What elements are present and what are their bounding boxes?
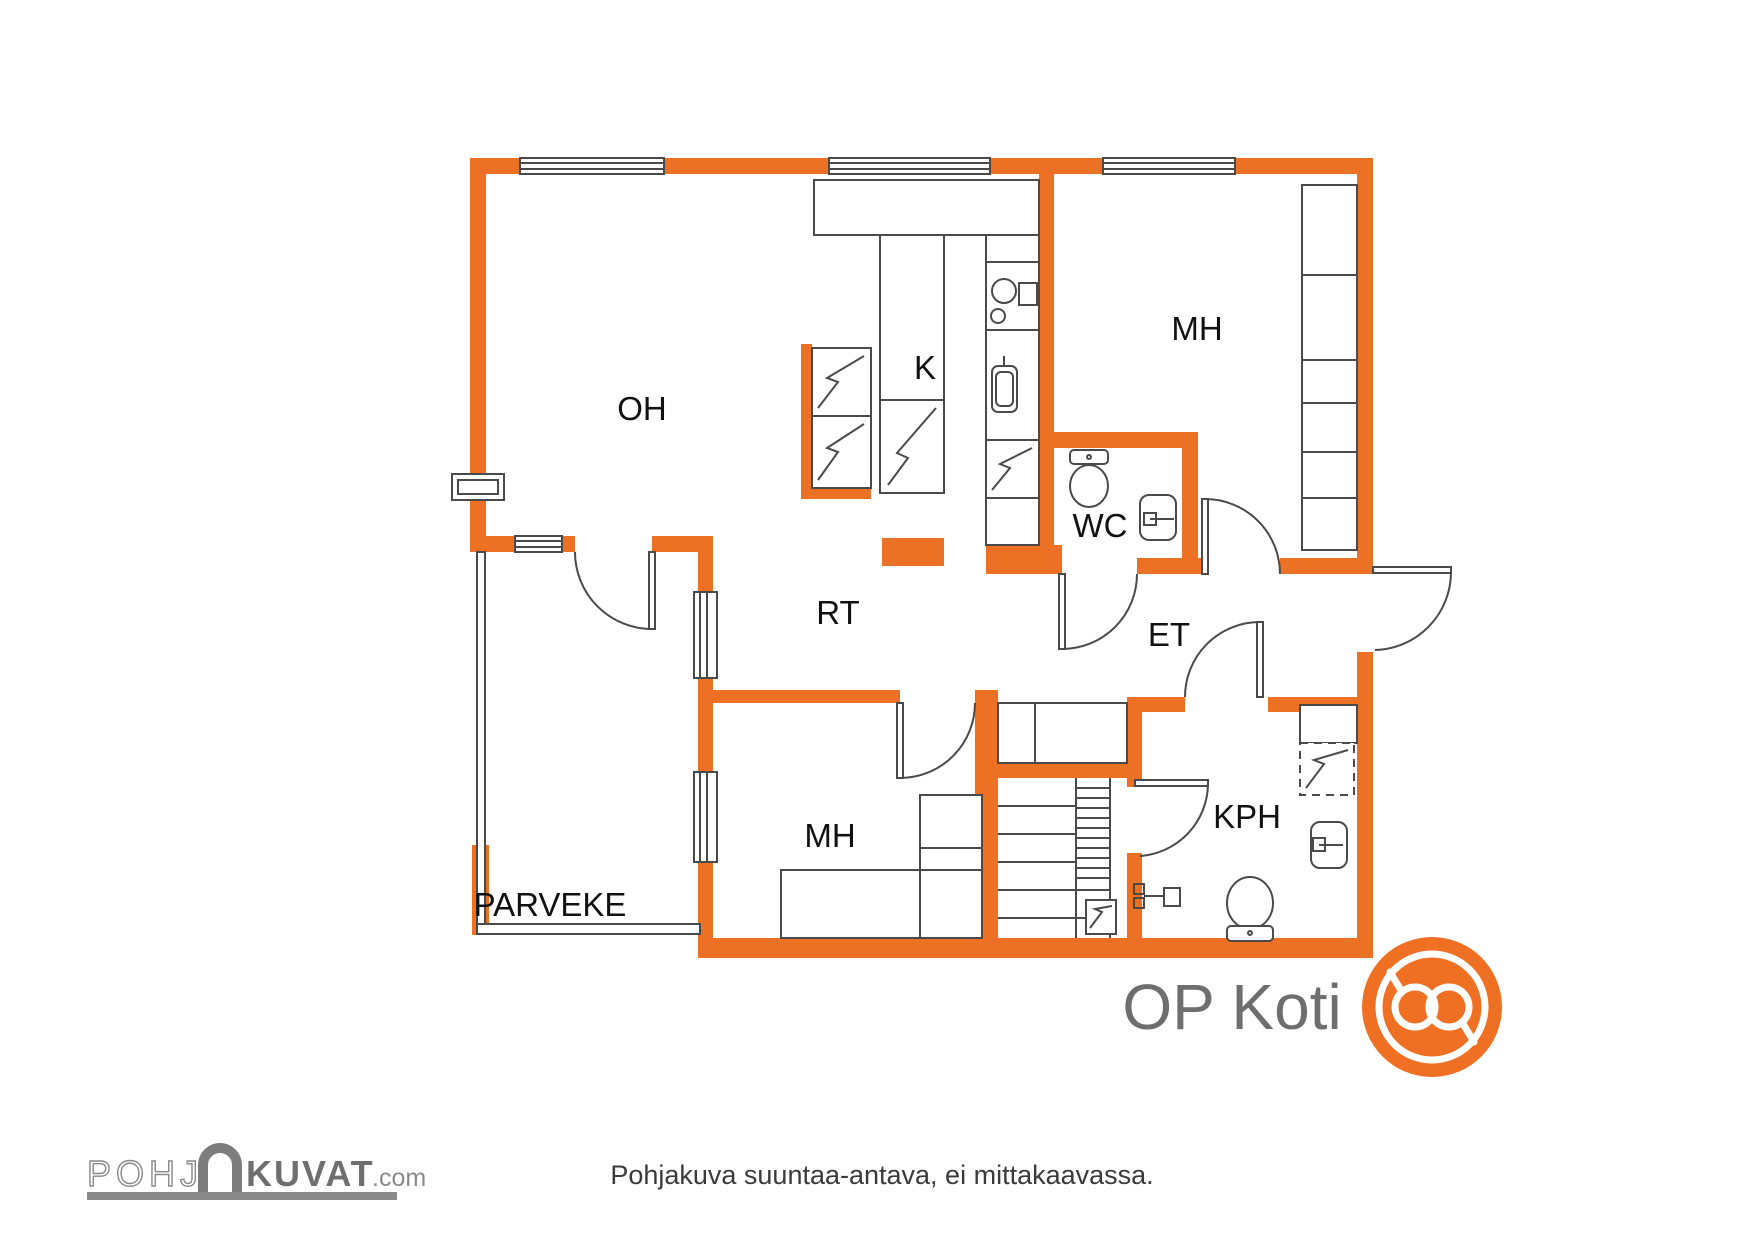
footer: Pohjakuva suuntaa-antava, ei mittakaavas…	[610, 1160, 1153, 1190]
room-label-oh: OH	[617, 390, 667, 427]
washbasin-icon	[1311, 822, 1347, 868]
appliance-reservation-icon	[1300, 705, 1357, 795]
wall-wc-top	[1054, 432, 1198, 448]
door-balcony	[575, 552, 655, 629]
door-mh-bottom	[897, 703, 975, 778]
room-label-mh-bottom: MH	[804, 817, 855, 854]
fireplace-wall	[801, 344, 812, 499]
fireplace-wall	[801, 488, 871, 499]
wall-mh2-top	[713, 690, 900, 703]
fireplace-icon	[812, 348, 871, 488]
pohjakuvat-part2: KUVAT	[246, 1153, 375, 1194]
door-entry	[1373, 567, 1451, 650]
room-label-k: K	[914, 349, 936, 386]
op-koti-text: OP Koti	[1122, 971, 1341, 1043]
pohjakuvat-underline	[87, 1192, 397, 1200]
wall-right	[1357, 652, 1373, 958]
wall-mh-top-bottom	[1280, 558, 1357, 574]
floorplan-canvas: OH K MH WC RT ET MH KPH PARVEKE Pohjakuv…	[0, 0, 1754, 1241]
window-icon	[694, 772, 717, 862]
wall-wc-bottom	[986, 545, 1062, 574]
balcony-railing	[477, 552, 700, 934]
wall-oh-bottom	[562, 536, 575, 552]
window-icon	[452, 474, 504, 500]
wall-top	[1235, 158, 1373, 174]
wardrobe	[1302, 185, 1357, 550]
window-icon	[694, 592, 717, 678]
window-icon	[1103, 158, 1235, 174]
room-label-mh-top: MH	[1171, 310, 1222, 347]
wall-k-mh	[1039, 174, 1054, 574]
pohjakuvat-suffix: .com	[372, 1164, 426, 1192]
door-kph-inner	[1135, 780, 1208, 856]
window-icon	[520, 158, 664, 174]
wall-oh-bottom	[470, 536, 515, 552]
room-labels: OH K MH WC RT ET MH KPH PARVEKE	[474, 310, 1281, 923]
linework	[452, 158, 1451, 941]
wall-balcony-right	[698, 678, 713, 772]
door-mh-top	[1202, 499, 1280, 574]
wall-top	[664, 158, 829, 174]
washbasin-icon	[1140, 495, 1176, 540]
disclaimer-text: Pohjakuva suuntaa-antava, ei mittakaavas…	[610, 1160, 1153, 1190]
toilet-icon	[1227, 877, 1273, 941]
room-label-et: ET	[1148, 616, 1190, 653]
floorplan-page: OH K MH WC RT ET MH KPH PARVEKE Pohjakuv…	[0, 0, 1754, 1241]
room-label-parveke: PARVEKE	[474, 886, 627, 923]
wall-kph-left	[1127, 853, 1142, 938]
wall-kph-left	[1127, 697, 1142, 787]
wall-right	[1357, 158, 1373, 574]
room-label-kph: KPH	[1213, 798, 1281, 835]
wall-wc-bottom	[1137, 558, 1205, 574]
wall-stair-bar	[998, 763, 1127, 778]
pohjakuvat-arch-icon	[203, 1148, 237, 1196]
window-icon	[829, 158, 990, 174]
op-logo-icon	[1362, 937, 1502, 1077]
window-icon	[515, 536, 562, 552]
wall-wc-right	[1182, 448, 1198, 574]
room-label-rt: RT	[816, 594, 859, 631]
pohjakuvat-part1: POHJ	[87, 1153, 203, 1194]
wall-k-stub	[882, 538, 944, 566]
wall-balcony-right	[698, 536, 713, 592]
room-label-wc: WC	[1073, 507, 1128, 544]
heater-icon	[1086, 900, 1116, 934]
toilet-icon	[1070, 450, 1108, 507]
wall-top	[990, 158, 1103, 174]
wall-left	[470, 158, 486, 474]
door-kph-et	[1185, 622, 1263, 697]
door-wc	[1059, 574, 1137, 649]
pohjakuvat-logo: POHJ KUVAT .com	[87, 1148, 426, 1200]
